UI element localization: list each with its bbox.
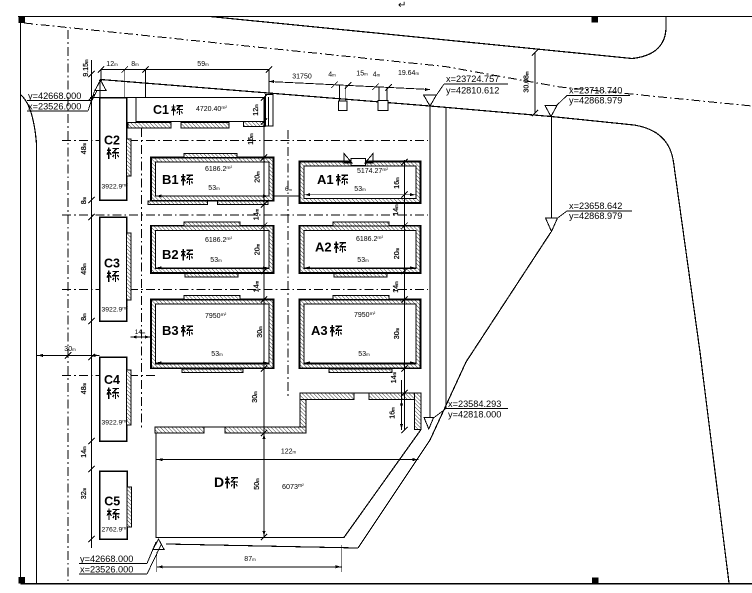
svg-text:30.08m: 30.08m — [524, 71, 531, 93]
svg-text:30m: 30m — [394, 327, 401, 339]
svg-text:D: D — [214, 474, 224, 490]
svg-text:y=42668.000: y=42668.000 — [80, 554, 133, 564]
svg-text:14m: 14m — [81, 446, 88, 458]
svg-text:x=23718.740: x=23718.740 — [569, 86, 622, 96]
svg-text:C5: C5 — [104, 495, 120, 509]
svg-text:30m: 30m — [257, 326, 264, 338]
svg-text:8m: 8m — [81, 313, 88, 321]
svg-text:x=23526.000: x=23526.000 — [28, 102, 81, 112]
svg-text:50m: 50m — [254, 478, 261, 490]
svg-text:32m: 32m — [81, 487, 88, 499]
svg-text:14m: 14m — [254, 208, 261, 220]
svg-text:19.64m: 19.64m — [398, 70, 420, 77]
svg-text:C4: C4 — [104, 373, 120, 387]
svg-text:16m: 16m — [248, 133, 255, 145]
svg-text:14m: 14m — [135, 329, 146, 336]
svg-text:B2: B2 — [162, 247, 179, 262]
svg-text:A2: A2 — [315, 240, 332, 255]
svg-text:14m: 14m — [393, 204, 400, 216]
svg-text:6m: 6m — [285, 186, 293, 193]
svg-text:C1: C1 — [153, 103, 169, 117]
svg-text:20m: 20m — [255, 243, 262, 255]
svg-text:53m: 53m — [211, 351, 223, 358]
svg-text:20m: 20m — [255, 171, 262, 183]
svg-text:A3: A3 — [311, 323, 328, 338]
svg-text:53m: 53m — [354, 186, 366, 193]
svg-text:30m: 30m — [252, 391, 259, 403]
svg-text:12m: 12m — [106, 61, 118, 68]
svg-text:y=42810.612: y=42810.612 — [446, 86, 499, 96]
svg-text:53m: 53m — [210, 257, 222, 264]
svg-text:8m: 8m — [131, 61, 139, 68]
svg-text:9.15m: 9.15m — [83, 59, 90, 77]
svg-text:14m: 14m — [254, 280, 261, 292]
svg-text:87m: 87m — [244, 556, 256, 563]
svg-text:48m: 48m — [81, 382, 88, 394]
svg-text:x=23724.757: x=23724.757 — [446, 74, 499, 84]
svg-text:12m: 12m — [253, 104, 260, 116]
svg-text:14m: 14m — [391, 371, 398, 383]
svg-text:C2: C2 — [104, 134, 120, 148]
svg-text:y=42868.979: y=42868.979 — [569, 96, 622, 106]
svg-text:B1: B1 — [162, 172, 179, 187]
svg-text:30m: 30m — [64, 346, 76, 353]
svg-text:53m: 53m — [357, 257, 369, 264]
svg-text:y=42868.979: y=42868.979 — [569, 211, 622, 221]
svg-text:53m: 53m — [208, 185, 220, 192]
svg-text:x=23584.293: x=23584.293 — [448, 399, 501, 409]
svg-text:53m: 53m — [358, 351, 370, 358]
svg-text:x=23526.000: x=23526.000 — [80, 565, 133, 575]
svg-text:B3: B3 — [162, 323, 179, 338]
svg-text:16m: 16m — [390, 407, 397, 419]
svg-text:8m: 8m — [81, 196, 88, 204]
svg-text:x=23658.642: x=23658.642 — [569, 201, 622, 211]
svg-text:122m: 122m — [281, 449, 297, 456]
svg-text:4m: 4m — [328, 72, 336, 79]
svg-text:A1: A1 — [317, 172, 334, 187]
svg-text:↵: ↵ — [398, 0, 406, 11]
svg-text:y=42668.000: y=42668.000 — [28, 91, 81, 101]
svg-text:59m: 59m — [197, 61, 209, 68]
svg-text:48m: 48m — [81, 263, 88, 275]
svg-text:48m: 48m — [81, 142, 88, 154]
svg-text:C3: C3 — [104, 257, 120, 271]
svg-text:14m: 14m — [393, 281, 400, 293]
svg-text:16m: 16m — [394, 177, 401, 189]
svg-text:4m: 4m — [373, 72, 381, 79]
svg-text:15m: 15m — [356, 71, 368, 78]
svg-text:20m: 20m — [394, 247, 401, 259]
svg-text:31750: 31750 — [292, 74, 312, 81]
svg-text:y=42818.000: y=42818.000 — [448, 410, 501, 420]
